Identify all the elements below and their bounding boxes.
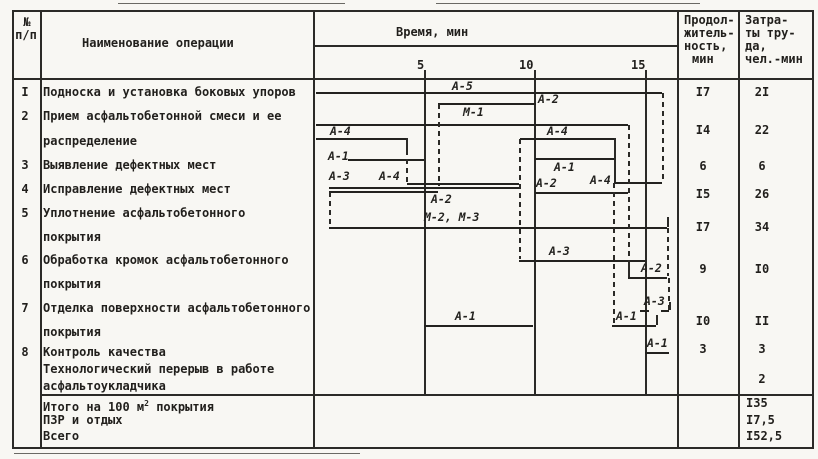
gantt-bar xyxy=(316,138,406,140)
column-border-num xyxy=(40,10,42,449)
table-right-border xyxy=(812,10,814,449)
labor-value: I0 xyxy=(755,263,769,276)
gantt-transition-dash xyxy=(329,192,331,226)
gantt-bar-label: М-1 xyxy=(463,106,484,118)
duration-value: I5 xyxy=(696,188,710,201)
column-border-name xyxy=(313,10,315,449)
row-number: 8 xyxy=(21,346,28,359)
gantt-bar xyxy=(424,325,533,327)
labor-value: II xyxy=(755,315,769,328)
row-number: 3 xyxy=(21,159,28,172)
operation-name: Уплотнение асфальтобетонного xyxy=(43,207,245,220)
row-number: 6 xyxy=(21,254,28,267)
header-labor-line: чел.-мин xyxy=(745,53,803,66)
gantt-bar-label: А-4 xyxy=(330,125,351,137)
table-top-border xyxy=(12,10,812,12)
duration-value: 6 xyxy=(699,160,706,173)
duration-value: I0 xyxy=(696,315,710,328)
labor-value: 34 xyxy=(755,221,769,234)
gantt-corner xyxy=(406,138,408,150)
duration-value: I7 xyxy=(696,221,710,234)
column-border-labor xyxy=(738,10,740,449)
gantt-bar-label: А-2 xyxy=(536,177,557,189)
gantt-bar-label: А-2 xyxy=(641,262,662,274)
gantt-corner xyxy=(614,138,616,182)
gantt-corner xyxy=(667,217,669,227)
labor-value: 3 xyxy=(758,343,765,356)
labor-value: 2 xyxy=(758,373,765,386)
labor-value: 26 xyxy=(755,188,769,201)
gantt-bar xyxy=(645,352,669,354)
operation-name: покрытия xyxy=(43,231,101,244)
operation-name: покрытия xyxy=(43,278,101,291)
duration-value: I7 xyxy=(696,86,710,99)
gantt-bar-label: А-1 xyxy=(647,337,668,349)
row-number: I xyxy=(21,86,28,99)
row-number: 2 xyxy=(21,110,28,123)
totals-label: ПЗР и отдых xyxy=(43,414,122,427)
table-line xyxy=(313,45,679,47)
gantt-bar-label: М-2, М-3 xyxy=(424,211,479,223)
gantt-bar xyxy=(329,227,667,229)
gantt-transition-dash xyxy=(613,183,615,324)
row-number: 7 xyxy=(21,302,28,315)
header-duration-line: мин xyxy=(692,53,714,66)
table-line xyxy=(14,453,360,454)
gantt-transition-dash xyxy=(667,228,669,276)
axis-tick-label: 15 xyxy=(631,59,645,72)
gantt-bar-label: А-1 xyxy=(328,150,349,162)
gantt-bar-label: А-1 xyxy=(554,161,575,173)
header-num-label: п/п xyxy=(15,29,37,42)
gantt-bar-label: А-3 xyxy=(549,245,570,257)
labor-value: 22 xyxy=(755,124,769,137)
gantt-bar xyxy=(640,310,649,312)
row-number: 4 xyxy=(21,183,28,196)
operation-name: Прием асфальтобетонной смеси и ее xyxy=(43,110,281,123)
column-border-duration xyxy=(677,10,679,449)
gantt-transition-dash xyxy=(519,139,521,259)
operation-name: Обработка кромок асфальтобетонного xyxy=(43,254,289,267)
operation-name: Подноска и установка боковых упоров xyxy=(43,86,296,99)
axis-tick-label: 10 xyxy=(519,59,533,72)
gantt-bar xyxy=(329,187,519,189)
gantt-bar-label: А-3 xyxy=(329,170,350,182)
table-left-border xyxy=(12,10,14,449)
gantt-bar xyxy=(612,325,656,327)
totals-value: I35 xyxy=(746,397,768,410)
gantt-bar-label: А-3 xyxy=(644,295,665,307)
operation-name: Технологический перерыв в работе xyxy=(43,363,274,376)
totals-separator xyxy=(40,394,812,396)
gantt-bar-label: А-4 xyxy=(590,174,611,186)
axis-tick-label: 5 xyxy=(417,59,424,72)
gantt-bar-label: А-2 xyxy=(431,193,452,205)
gantt-bar-label: А-4 xyxy=(547,125,568,137)
operation-name: покрытия xyxy=(43,326,101,339)
gantt-bar xyxy=(316,92,662,94)
gridline-10min xyxy=(534,70,536,394)
gantt-transition-dash xyxy=(628,125,630,259)
gantt-bar xyxy=(407,183,519,185)
gantt-transition-dash xyxy=(406,150,408,182)
duration-value: I4 xyxy=(696,124,710,137)
header-time-label: Время, мин xyxy=(396,26,468,39)
duration-value: 9 xyxy=(699,263,706,276)
table-bottom-border xyxy=(12,447,812,449)
totals-value: I52,5 xyxy=(746,430,782,443)
totals-label: Итого на 100 м2 покрытия xyxy=(43,397,214,414)
operation-name: Отделка поверхности асфальтобетонного xyxy=(43,302,310,315)
scanned-technology-chart: № п/п Наименование операции Время, мин П… xyxy=(0,0,818,459)
header-operation-name: Наименование операции xyxy=(82,37,234,50)
table-line xyxy=(118,3,345,4)
gantt-bar-label: А-1 xyxy=(455,310,476,322)
gantt-bar-label: А-5 xyxy=(452,80,473,92)
row-number: 5 xyxy=(21,207,28,220)
duration-value: 3 xyxy=(699,343,706,356)
gantt-corner xyxy=(628,260,630,277)
gantt-bar xyxy=(520,138,614,140)
gantt-bar xyxy=(438,103,536,105)
gantt-transition-dash xyxy=(668,278,670,311)
gantt-corner xyxy=(656,315,658,325)
operation-name: Контроль качества xyxy=(43,346,166,359)
totals-label: Всего xyxy=(43,430,79,443)
operation-name: Выявление дефектных мест xyxy=(43,159,216,172)
labor-value: 6 xyxy=(758,160,765,173)
gantt-transition-dash xyxy=(438,104,440,186)
gantt-bar xyxy=(329,191,438,193)
gantt-transition-dash xyxy=(662,93,664,182)
gantt-bar-label: А-1 xyxy=(616,310,637,322)
totals-value: I7,5 xyxy=(746,414,775,427)
gantt-bar xyxy=(614,182,662,184)
gantt-bar-label: А-4 xyxy=(379,170,400,182)
operation-name: распределение xyxy=(43,135,137,148)
gantt-bar-label: А-2 xyxy=(538,93,559,105)
table-line xyxy=(436,3,700,4)
header-separator xyxy=(12,78,812,80)
gantt-bar xyxy=(628,277,667,279)
gantt-bar xyxy=(316,124,628,126)
gantt-bar xyxy=(519,260,645,262)
operation-name: асфальтоукладчика xyxy=(43,380,166,393)
operation-name: Исправление дефектных мест xyxy=(43,183,231,196)
labor-value: 2I xyxy=(755,86,769,99)
gantt-bar xyxy=(348,159,424,161)
gridline-5min xyxy=(424,70,426,394)
